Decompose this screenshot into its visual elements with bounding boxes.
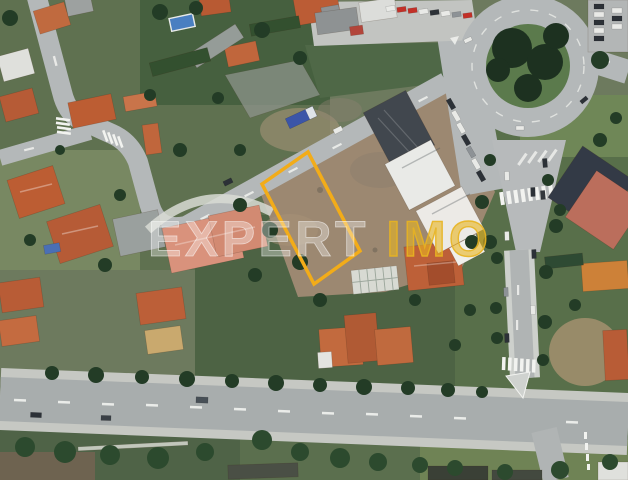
house (581, 260, 628, 291)
house (136, 287, 186, 325)
watermark-accent: IMO (386, 211, 491, 267)
house (317, 352, 332, 369)
house (603, 329, 628, 380)
avenue-asphalt (0, 399, 628, 424)
watermark-text: EXPERT IMO (148, 211, 491, 267)
aerial-scene: EXPERT IMO (0, 0, 628, 480)
greenhouse (351, 266, 399, 295)
house (145, 326, 184, 355)
house (344, 313, 380, 364)
roof-strip (228, 463, 298, 479)
house (374, 326, 413, 365)
dirt-mottle (318, 98, 362, 122)
house (0, 315, 40, 346)
building (350, 25, 364, 36)
watermark-primary: EXPERT (148, 211, 369, 267)
house (0, 277, 44, 313)
zone-soil-patch (0, 452, 95, 480)
satellite-photo: EXPERT IMO (0, 0, 628, 480)
